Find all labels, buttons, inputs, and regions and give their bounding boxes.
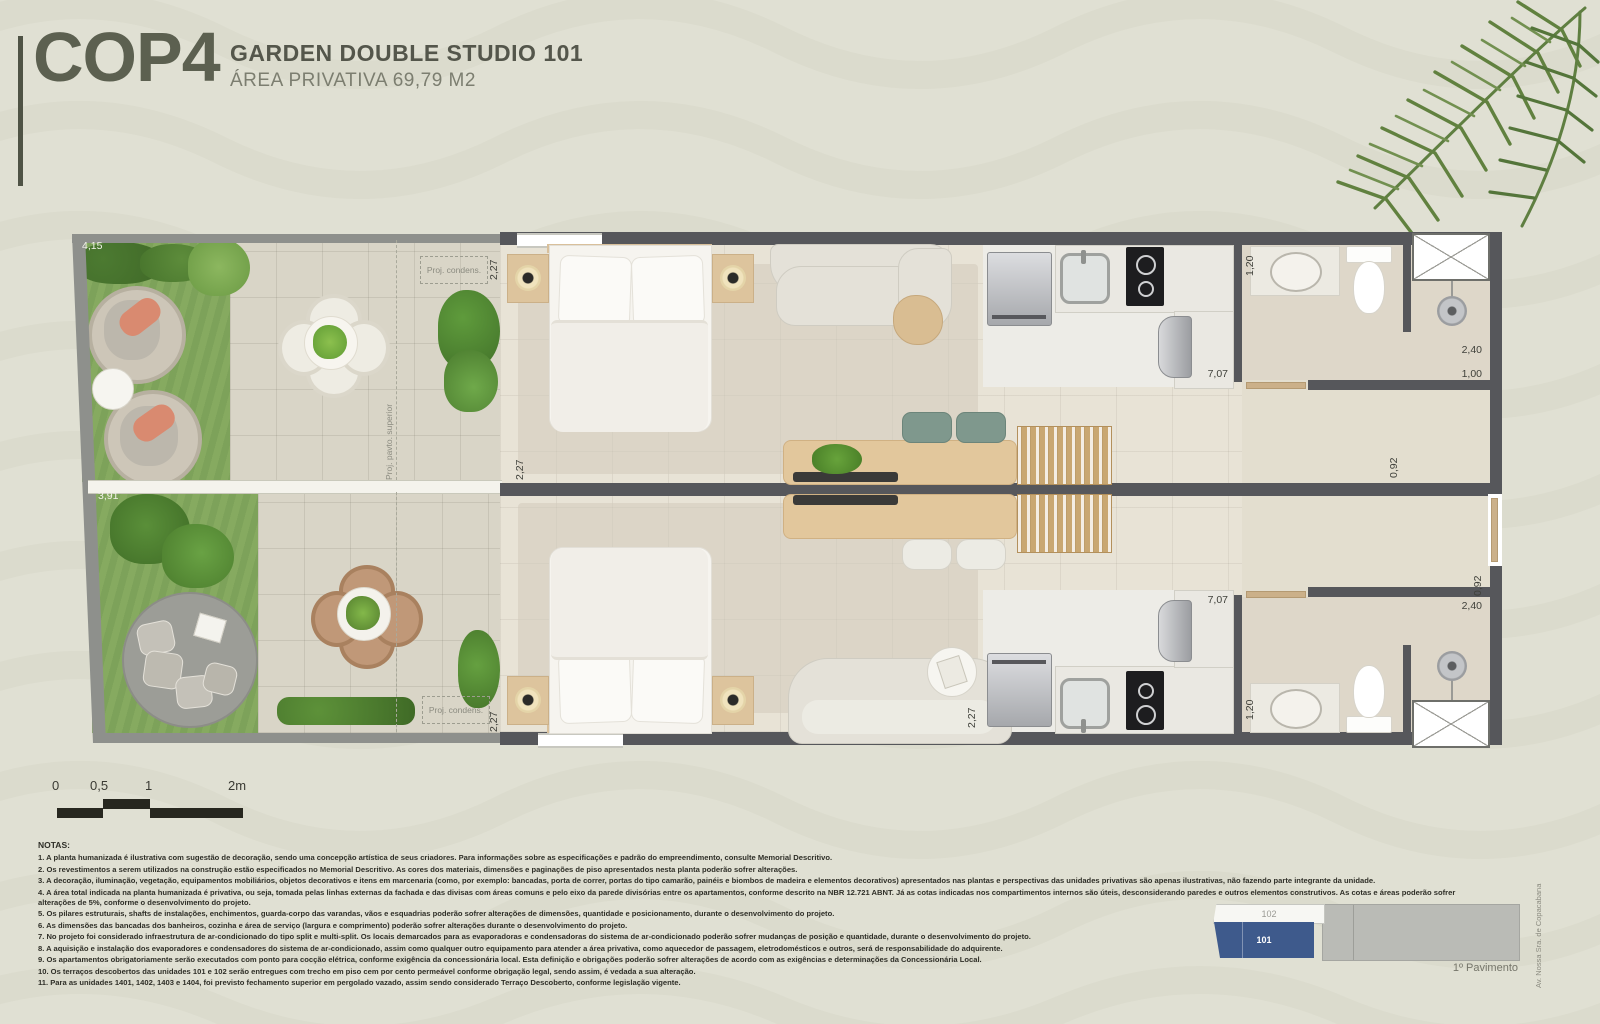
dim-label: 0,92: [1472, 562, 1484, 596]
keyplan-unit-101: 101: [1214, 922, 1314, 958]
palm-plant-top: [188, 238, 250, 296]
toilet-bowl-lower: [1353, 665, 1385, 718]
bed-duvet-upper: [551, 320, 708, 432]
street-label: Av. Nossa Sra. de Copacabana: [1534, 858, 1543, 988]
fridge-handle: [992, 315, 1046, 319]
note-item: 11. Para as unidades 1401, 1402, 1403 e …: [38, 978, 1486, 988]
fridge-upper: [987, 252, 1052, 326]
burner-icon: [1136, 255, 1156, 275]
lamp-icon: [720, 265, 746, 291]
washer-lower: [1158, 600, 1192, 662]
door-upper-unit: [1246, 382, 1306, 389]
kitchen-sink-upper: [1060, 253, 1110, 304]
keyplan-unit-102-label: 102: [1214, 905, 1324, 923]
fern-lower-2: [162, 524, 234, 588]
magazine-icon: [936, 655, 967, 689]
bed-duvet-lower: [551, 548, 708, 660]
dim-label: 2,40: [1422, 344, 1482, 356]
dim-label: 0,92: [1388, 444, 1400, 478]
garden-wall-top: [72, 234, 502, 243]
cooktop-upper: [1126, 247, 1164, 306]
condenser-projection-label: Proj. condens.: [427, 265, 481, 275]
palm-leaf-decoration: [1280, 0, 1600, 240]
window-bottom: [538, 733, 623, 748]
note-item: 2. Os revestimentos a serem utilizados n…: [38, 865, 1486, 875]
slat-bench-lower: [1017, 494, 1112, 553]
dining-chair-white: [956, 539, 1006, 570]
table-plant-lower: [346, 596, 380, 630]
scale-tick-label: 0: [52, 778, 59, 793]
dim-label: 2,27: [514, 446, 526, 480]
burner-icon: [1136, 705, 1156, 725]
dim-label: 1,20: [1244, 690, 1256, 720]
keyplan-unit-102: 102: [1213, 904, 1325, 924]
toilet-bowl-upper: [1353, 261, 1385, 314]
garden-wall-bottom: [94, 733, 502, 743]
bed-pillow: [631, 255, 705, 327]
lamp-icon: [515, 265, 541, 291]
condenser-projection-box-upper: Proj. condens.: [420, 256, 488, 284]
table-plant-upper: [812, 444, 862, 474]
dim-label: 7,07: [1168, 594, 1228, 606]
keyplan-unit-divider: [1242, 922, 1243, 958]
upper-floor-projection-label: Proj. pavto. superior: [384, 362, 394, 480]
dining-chair-white: [902, 539, 952, 570]
slat-bench-upper: [1017, 426, 1112, 485]
bed-pillow: [631, 652, 705, 724]
dim-label: 3,91: [98, 490, 118, 502]
nightstand: [507, 676, 549, 725]
projection-line-upper: [396, 240, 397, 480]
condenser-projection-label: Proj. condens.: [429, 705, 483, 715]
keyplan-floor-label: 1º Pavimento: [1398, 962, 1518, 974]
bed-pillow: [558, 255, 632, 327]
basin-lower: [1270, 689, 1322, 729]
wall-hall-upper: [1308, 380, 1490, 390]
wall-shower-lower: [1403, 645, 1411, 732]
burner-icon: [1138, 683, 1154, 699]
bed-pillow: [558, 652, 632, 724]
scale-bar-segment: [57, 808, 103, 818]
faucet-icon: [1081, 250, 1086, 264]
nightstand: [712, 676, 754, 725]
scale-tick-label: 0,5: [90, 778, 108, 793]
shrub-right-upper-2: [444, 350, 498, 412]
wall-shower-upper: [1403, 245, 1411, 332]
fridge-lower: [987, 653, 1052, 727]
lamp-icon: [720, 687, 746, 713]
side-table-lower: [927, 647, 977, 697]
note-item: 10. Os terraços descobertos das unidades…: [38, 967, 1486, 977]
door-lower-unit: [1246, 591, 1306, 598]
keyplan-unit-101-label: 101: [1214, 922, 1314, 958]
dim-label: 2,27: [488, 698, 500, 732]
condenser-projection-box-lower: Proj. condens.: [422, 696, 490, 724]
nightstand: [712, 254, 754, 303]
terrace-divider: [88, 480, 502, 494]
fridge-handle: [992, 660, 1046, 664]
table-tray: [793, 472, 898, 482]
burner-icon: [1138, 281, 1154, 297]
shower-head-lower: [1437, 651, 1467, 681]
keyplan-building-mass: [1322, 904, 1520, 961]
table-plant: [313, 325, 347, 359]
table-tray: [793, 495, 898, 505]
shower-box-upper: [1412, 233, 1490, 281]
projection-line-lower: [396, 492, 397, 732]
dim-label: 2,40: [1422, 600, 1482, 612]
faucet-icon: [1081, 719, 1086, 733]
side-table-upper: [893, 295, 943, 345]
note-item: 3. A decoração, iluminação, vegetação, e…: [38, 876, 1486, 886]
garden-round-rug: [122, 592, 258, 728]
brand-logo: COP4: [33, 22, 220, 92]
scale-tick-label: 1: [145, 778, 152, 793]
cooktop-lower: [1126, 671, 1164, 730]
hedge-bottom: [277, 697, 415, 725]
dim-label: 1,00: [1422, 368, 1482, 380]
floor-plan: Proj. condens. Proj. condens. Proj. pavt…: [70, 232, 1502, 745]
note-item: 1. A planta humanizada é ilustrativa com…: [38, 853, 1486, 863]
scale-bar-segment: [150, 808, 243, 818]
scale-bar-segment: [103, 799, 150, 809]
shower-head-upper: [1437, 296, 1467, 326]
notes-title: NOTAS:: [38, 840, 1486, 850]
keyplan-divider-line: [1353, 905, 1354, 960]
dining-chair-green: [956, 412, 1006, 443]
shower-box-lower: [1412, 700, 1490, 748]
private-area-subtitle: ÁREA PRIVATIVA 69,79 M2: [230, 70, 476, 92]
kitchen-sink-lower: [1060, 678, 1110, 729]
dim-label: 2,27: [488, 246, 500, 280]
scale-tick-label: 2m: [228, 778, 246, 793]
basin-upper: [1270, 252, 1322, 292]
page: COP4 GARDEN DOUBLE STUDIO 101 ÁREA PRIVA…: [0, 0, 1600, 1024]
dining-chair-green: [902, 412, 952, 443]
dim-label: 1,20: [1244, 246, 1256, 276]
logo-accent-bar: [18, 36, 23, 186]
dim-label: 4,15: [82, 240, 102, 252]
entry-door: [1491, 498, 1498, 562]
page-title: GARDEN DOUBLE STUDIO 101: [230, 40, 583, 67]
dim-label: 7,07: [1168, 368, 1228, 380]
nightstand: [507, 254, 549, 303]
toilet-tank-lower: [1346, 716, 1392, 733]
wall-hall-lower: [1308, 587, 1490, 597]
magazine-icon: [193, 613, 227, 644]
dim-label: 2,27: [966, 694, 978, 728]
lamp-icon: [515, 687, 541, 713]
